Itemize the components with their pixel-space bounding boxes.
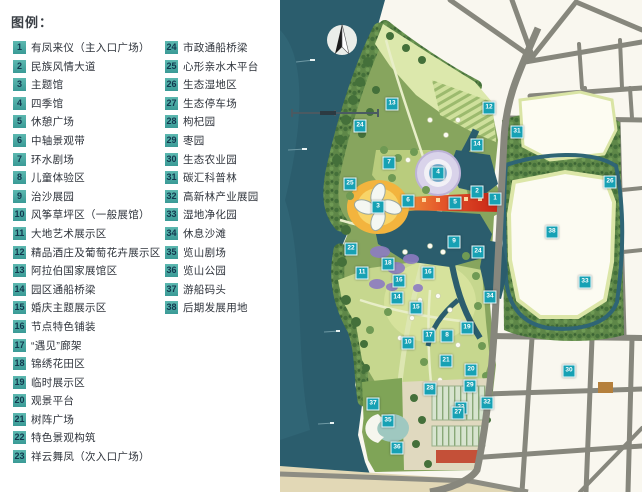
legend-item-label: 婚庆主题展示区 [31, 300, 107, 315]
masterplan-map[interactable]: 1234567891011121314141516161718192021222… [280, 0, 642, 492]
legend-item-label: 树阵广场 [31, 412, 74, 427]
legend-item-label: 中轴景观带 [31, 133, 85, 148]
legend-item-number: 12 [13, 246, 26, 259]
legend-item-label: 生态农业园 [183, 152, 237, 167]
legend-item-number: 19 [13, 376, 26, 389]
legend-item-number: 7 [13, 153, 26, 166]
map-marker[interactable]: 38 [546, 226, 559, 239]
legend-item-number: 20 [13, 394, 26, 407]
legend-item: 28枸杞园 [165, 115, 280, 128]
legend-item-label: 精品酒庄及葡萄花卉展示区 [31, 245, 161, 260]
legend-item: 21树阵广场 [13, 413, 168, 426]
legend-item: 1有凤来仪（主入口广场） [13, 41, 168, 54]
legend-item-number: 34 [165, 227, 178, 240]
legend-item-number: 38 [165, 301, 178, 314]
map-marker[interactable]: 6 [402, 195, 415, 208]
legend-item-number: 15 [13, 301, 26, 314]
map-marker[interactable]: 21 [440, 355, 453, 368]
legend-item: 20观景平台 [13, 394, 168, 407]
legend-panel: 图例： 1有凤来仪（主入口广场）2民族风情大道3主题馆4四季馆5休憩广场6中轴景… [0, 0, 280, 492]
legend-item: 36览山公园 [165, 264, 280, 277]
legend-item-label: 节点特色铺装 [31, 319, 96, 334]
map-marker[interactable]: 25 [344, 178, 357, 191]
legend-item: 34休息沙滩 [165, 227, 280, 240]
legend-item: 29枣园 [165, 134, 280, 147]
map-marker[interactable]: 1 [489, 193, 502, 206]
legend-item: 13阿拉伯国家展馆区 [13, 264, 168, 277]
legend-item: 24市政通船桥梁 [165, 41, 280, 54]
legend-item-label: 观景平台 [31, 393, 74, 408]
legend-item: 16节点特色铺装 [13, 320, 168, 333]
legend-item-number: 29 [165, 134, 178, 147]
map-marker[interactable]: 29 [464, 380, 477, 393]
map-marker[interactable]: 34 [484, 291, 497, 304]
legend-item: 6中轴景观带 [13, 134, 168, 147]
legend-item-number: 11 [13, 227, 26, 240]
legend-item: 9治沙展园 [13, 190, 168, 203]
legend-item: 3主题馆 [13, 78, 168, 91]
legend-item-label: 特色景观构筑 [31, 430, 96, 445]
legend-item-number: 13 [13, 264, 26, 277]
map-marker[interactable]: 20 [465, 364, 478, 377]
legend-item-label: 市政通船桥梁 [183, 40, 248, 55]
legend-item-number: 25 [165, 60, 178, 73]
legend-item-label: 休息沙滩 [183, 226, 226, 241]
legend-item-label: 休憩广场 [31, 114, 74, 129]
legend-item-number: 23 [13, 450, 26, 463]
legend-item: 8儿童体验区 [13, 171, 168, 184]
map-marker[interactable]: 9 [448, 236, 461, 249]
legend-item: 5休憩广场 [13, 115, 168, 128]
legend-item-label: 生态湿地区 [183, 77, 237, 92]
legend-item: 30生态农业园 [165, 153, 280, 166]
map-marker[interactable]: 30 [563, 365, 576, 378]
legend-item-label: 碳汇科普林 [183, 170, 237, 185]
legend-item: 32高新林产业展园 [165, 190, 280, 203]
legend-item: 11大地艺术展示区 [13, 227, 168, 240]
legend-item-number: 33 [165, 208, 178, 221]
legend-item: 25心形亲水木平台 [165, 60, 280, 73]
legend-item-number: 32 [165, 190, 178, 203]
map-marker[interactable]: 33 [579, 276, 592, 289]
legend-item: 27生态停车场 [165, 97, 280, 110]
legend-item-label: 阿拉伯国家展馆区 [31, 263, 117, 278]
legend-item: 17“遇见”廊架 [13, 339, 168, 352]
legend-item-label: 主题馆 [31, 77, 63, 92]
map-marker[interactable]: 14 [471, 139, 484, 152]
legend-item: 37游船码头 [165, 283, 280, 296]
legend-item-number: 10 [13, 208, 26, 221]
legend-item-number: 6 [13, 134, 26, 147]
legend-item-label: 环水剧场 [31, 152, 74, 167]
map-marker[interactable]: 35 [382, 415, 395, 428]
legend-item-number: 4 [13, 97, 26, 110]
legend-item-label: 锦绣花田区 [31, 356, 85, 371]
map-marker[interactable]: 28 [424, 383, 437, 396]
legend-item-number: 28 [165, 115, 178, 128]
legend-item-number: 9 [13, 190, 26, 203]
map-marker[interactable]: 2 [471, 186, 484, 199]
legend-item-label: 生态停车场 [183, 96, 237, 111]
legend-item: 19临时展示区 [13, 376, 168, 389]
map-marker[interactable]: 16 [393, 275, 406, 288]
legend-column-2: 24市政通船桥梁25心形亲水木平台26生态湿地区27生态停车场28枸杞园29枣园… [165, 41, 280, 320]
map-marker[interactable]: 15 [410, 302, 423, 315]
southeast-parcel [598, 382, 613, 393]
map-marker[interactable]: 16 [422, 267, 435, 280]
legend-item-number: 5 [13, 115, 26, 128]
map-marker[interactable]: 32 [481, 397, 494, 410]
legend-item: 23祥云舞凤（次入口广场） [13, 450, 168, 463]
legend-item: 12精品酒庄及葡萄花卉展示区 [13, 246, 168, 259]
legend-item: 15婚庆主题展示区 [13, 301, 168, 314]
legend-item-label: 祥云舞凤（次入口广场） [31, 449, 150, 464]
legend-item-label: 四季馆 [31, 96, 63, 111]
legend-item-label: 后期发展用地 [183, 300, 248, 315]
legend-item-number: 24 [165, 41, 178, 54]
legend-item-number: 30 [165, 153, 178, 166]
legend-item-label: 大地艺术展示区 [31, 226, 107, 241]
map-marker[interactable]: 7 [383, 157, 396, 170]
legend-item: 33湿地净化园 [165, 208, 280, 221]
legend-item: 7环水剧场 [13, 153, 168, 166]
legend-item-label: 览山剧场 [183, 245, 226, 260]
legend-item: 14园区通船桥梁 [13, 283, 168, 296]
legend-item-label: 枣园 [183, 133, 205, 148]
parking-lot-south [432, 426, 485, 446]
legend-item-number: 8 [13, 171, 26, 184]
legend-item-number: 2 [13, 60, 26, 73]
legend-item-number: 22 [13, 431, 26, 444]
map-marker[interactable]: 26 [604, 176, 617, 189]
legend-item-label: 有凤来仪（主入口广场） [31, 40, 150, 55]
legend-item: 10风筝草坪区（一般展馆） [13, 208, 168, 221]
map-marker[interactable]: 31 [511, 126, 524, 139]
legend-item: 4四季馆 [13, 97, 168, 110]
legend-item-label: 览山公园 [183, 263, 226, 278]
legend-item: 26生态湿地区 [165, 78, 280, 91]
map-marker[interactable]: 19 [461, 322, 474, 335]
legend-item: 18锦绣花田区 [13, 357, 168, 370]
map-marker[interactable]: 10 [402, 337, 415, 350]
map-marker[interactable]: 14 [391, 292, 404, 305]
legend-item-number: 3 [13, 78, 26, 91]
legend-item-label: 园区通船桥梁 [31, 282, 96, 297]
legend-title: 图例： [11, 12, 53, 31]
map-marker[interactable]: 27 [452, 407, 465, 420]
map-marker[interactable]: 22 [345, 243, 358, 256]
service-building [436, 450, 482, 463]
legend-item-label: 儿童体验区 [31, 170, 85, 185]
legend-item-label: 游船码头 [183, 282, 226, 297]
map-marker[interactable]: 3 [372, 201, 385, 214]
map-marker[interactable]: 4 [432, 167, 445, 180]
map-marker[interactable]: 13 [386, 98, 399, 111]
legend-item-number: 14 [13, 283, 26, 296]
legend-item-label: 高新林产业展园 [183, 189, 259, 204]
map-marker[interactable]: 36 [391, 442, 404, 455]
map-marker[interactable]: 8 [441, 330, 454, 343]
legend-item-label: 治沙展园 [31, 189, 74, 204]
legend-item-number: 21 [13, 413, 26, 426]
legend-item-number: 1 [13, 41, 26, 54]
legend-item-number: 37 [165, 283, 178, 296]
legend-item-label: “遇见”廊架 [31, 338, 82, 353]
legend-item-label: 风筝草坪区（一般展馆） [31, 207, 150, 222]
legend-item-label: 心形亲水木平台 [183, 59, 259, 74]
map-marker[interactable]: 17 [423, 330, 436, 343]
legend-item: 2民族风情大道 [13, 60, 168, 73]
map-marker[interactable]: 5 [449, 197, 462, 210]
legend-item-label: 临时展示区 [31, 375, 85, 390]
legend-item: 35览山剧场 [165, 246, 280, 259]
legend-item: 38后期发展用地 [165, 301, 280, 314]
legend-item-number: 31 [165, 171, 178, 184]
legend-item-number: 18 [13, 357, 26, 370]
legend-item-number: 17 [13, 339, 26, 352]
map-marker[interactable]: 11 [356, 267, 369, 280]
map-marker[interactable]: 24 [354, 120, 367, 133]
legend-item: 22特色景观构筑 [13, 431, 168, 444]
legend-item-number: 16 [13, 320, 26, 333]
legend-item: 31碳汇科普林 [165, 171, 280, 184]
legend-item-label: 民族风情大道 [31, 59, 96, 74]
map-marker[interactable]: 37 [367, 398, 380, 411]
legend-item-label: 湿地净化园 [183, 207, 237, 222]
legend-item-label: 枸杞园 [183, 114, 215, 129]
legend-item-number: 27 [165, 97, 178, 110]
legend-item-number: 36 [165, 264, 178, 277]
map-marker[interactable]: 18 [382, 258, 395, 271]
map-marker[interactable]: 24 [472, 246, 485, 259]
legend-item-number: 35 [165, 246, 178, 259]
legend-column-1: 1有凤来仪（主入口广场）2民族风情大道3主题馆4四季馆5休憩广场6中轴景观带7环… [13, 41, 168, 469]
legend-item-number: 26 [165, 78, 178, 91]
map-marker[interactable]: 12 [483, 102, 496, 115]
